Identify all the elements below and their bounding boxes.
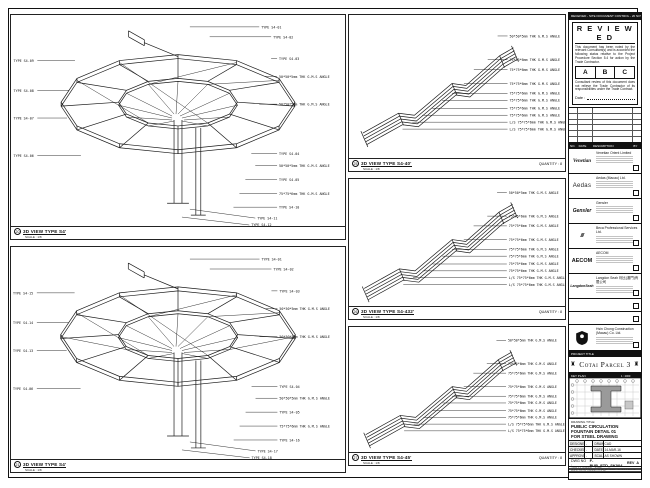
status-checkbox — [633, 165, 639, 171]
address-lines — [596, 206, 633, 213]
aedas-logo: Aedas — [573, 183, 592, 189]
detail-bubble: 20 — [14, 228, 21, 235]
callout-label: 50*50*5mm THK G.M.S ANGLE — [509, 191, 559, 195]
detail-bubble: 21 — [14, 461, 21, 468]
callout-label: 75*75*6mm THK G.M.S ANGLE — [279, 425, 330, 429]
callout-label: 50*50*5mm THK G.M.S ANGLE — [279, 75, 330, 79]
callout-label: 75*75*6mm THK G.M.S ANGLE — [510, 58, 561, 62]
consultant-name: Gensler — [596, 201, 608, 205]
viewport-angles-bottom: 50*50*5mm THK G.M.S ANGLE 75*75*6mm THK … — [348, 326, 566, 466]
leader-lines — [404, 340, 506, 430]
revision-table — [569, 108, 641, 143]
adjacent-block — [625, 401, 633, 409]
grade-a: A — [576, 67, 596, 78]
status-checkbox — [633, 290, 639, 296]
viewport-scale: SCALE : 1/8 — [25, 235, 342, 239]
title-block-panel: RECEIVED - SITE DOCUMENT CONTROL - 20 NO… — [568, 12, 642, 480]
callout-label: TYPE S4-08 — [14, 89, 34, 93]
drawing-title-line-3: FOR STEEL DRAWING — [571, 434, 639, 439]
callout-label: TYPE S4-06 — [14, 154, 34, 158]
callout-label: 75*75*6mm THK G.M.S ANGLE — [510, 99, 561, 103]
consultant-name: AECOM — [596, 251, 608, 255]
callout-label: 50*50*5mm THK G.M.S ANGLE — [510, 34, 561, 38]
status-grades: A B C — [575, 66, 635, 79]
callout-label: 75*75*6mm THK G.M.S ANGLE — [510, 82, 561, 86]
callout-label: TYPE S4-01 — [261, 25, 281, 29]
contractor-name: Hsin Chong Construction (Macau) Co. Ltd. — [596, 327, 634, 335]
consultant-name: Beca Professional Services Ltd. — [596, 226, 637, 234]
project-name: Cotai Parcel 3 — [579, 360, 631, 369]
callout-label: TYPE S4-15 — [13, 291, 33, 295]
callout-label: 75*75*6mm THK G.M.S ANGLE — [509, 269, 559, 273]
wireframe-angles-drawing: 50*50*5mm THK G.M.S ANGLE 75*75*6mm THK … — [349, 179, 565, 306]
address-lines — [596, 236, 633, 243]
callout-label: 50*50*5mm THK G.M.S ANGLE — [279, 103, 330, 107]
address-lines — [596, 286, 633, 293]
status-checkbox — [633, 303, 639, 309]
callout-label: TYPE S4-03 — [279, 57, 299, 61]
address-lines — [596, 256, 633, 263]
callout-label: TYPE S4-17 — [258, 449, 278, 453]
callout-label: 75*75*6mm THK G.M.S ANGLE — [510, 68, 561, 72]
viewport-label-block: 21 3D VIEW TYPE S4' SCALE : 1/8 — [11, 459, 345, 472]
callout-label: 50*50*5mm THK G.M.S ANGLE — [279, 164, 330, 168]
quantity-note: QUANTITY : 8 — [539, 162, 562, 166]
callout-label: 75*75*6mm THK G.M.S ANGLE — [509, 262, 559, 266]
wireframe-canopy-drawing: TYPE S4-01 TYPE S4-02 TYPE S4-15 TYPE S4… — [11, 247, 345, 459]
callout-label: 50*50*5mm THK G.M.S ANGLE — [279, 335, 330, 339]
callout-label: TYPE S4-11 — [257, 217, 277, 221]
callout-label: TYPE S4-05 — [279, 411, 299, 415]
callout-labels: 50*50*5mm THK G.M.S ANGLE 75*75*6mm THK … — [508, 339, 565, 433]
callout-label: 75*75*6mm THK G.M.S ANGLE — [510, 114, 561, 118]
angle-bundle — [362, 202, 517, 302]
canopy-structure — [61, 31, 295, 215]
viewport-label-block: 26 3D VIEW TYPE S4-432' QUANTITY : 8 SCA… — [349, 306, 565, 319]
langdon-seah-logo: LangdonSeah — [570, 284, 593, 288]
callout-label: 75*75*6mm THK G.M.S ANGLE — [508, 416, 557, 420]
detail-bubble: 26 — [352, 308, 359, 315]
callout-label: TYPE S4-04 — [279, 152, 299, 156]
callout-label: L/S 75*75*6mm THK G.M.S ANGLE — [510, 127, 565, 131]
viewport-canopy-top: TYPE S4-01 TYPE S4-02 TYPE S4-09 TYPE S4… — [10, 14, 346, 240]
viewport-angles-top: 50*50*5mm THK G.M.S ANGLE 75*75*6mm THK … — [348, 14, 566, 172]
viewport-label-block: 27 3D VIEW TYPE S4-45' QUANTITY : 8 SCAL… — [349, 452, 565, 465]
callout-label: 75*75*6mm THK G.M.S ANGLE — [509, 214, 559, 218]
viewport-title: 3D VIEW TYPE S4' — [23, 462, 66, 468]
viewport-title: 3D VIEW TYPE S4-40' — [361, 161, 412, 167]
key-plan: KEY PLAN 1 : 2000 — [569, 373, 641, 419]
callout-label: 50*50*5mm THK G.M.S ANGLE — [508, 339, 557, 343]
drawing-sheet: TYPE S4-01 TYPE S4-02 TYPE S4-09 TYPE S4… — [0, 0, 650, 488]
status-checkbox — [633, 342, 639, 348]
viewport-scale: SCALE : 1/8 — [363, 167, 562, 171]
callout-label: L/S 75*75*6mm THK G.M.S ANGLE — [510, 120, 565, 124]
viewport-scale: SCALE : 1/8 — [363, 315, 562, 319]
callout-label: 50*50*5mm THK G.M.S ANGLE — [279, 307, 330, 311]
banner-ornament-left-icon: ♜ — [570, 362, 576, 368]
dwg-number-row: DWG NO : F-PUB_FTD_SK004 REV A — [569, 459, 641, 467]
detail-bubble: 27 — [352, 454, 359, 461]
leader-lines — [403, 36, 508, 129]
viewport-canopy-bottom: TYPE S4-01 TYPE S4-02 TYPE S4-15 TYPE S4… — [10, 246, 346, 473]
key-plan-scale: 1 : 2000 — [621, 374, 631, 378]
beca-logo: /// — [580, 233, 583, 239]
callout-label: TYPE S4-10 — [279, 206, 299, 210]
callout-label: 75*75*6mm THK G.M.S ANGLE — [508, 362, 557, 366]
wireframe-canopy-drawing: TYPE S4-01 TYPE S4-02 TYPE S4-09 TYPE S4… — [11, 15, 345, 226]
callout-label: TYPE S4-05 — [279, 178, 299, 182]
callout-label: 75*75*6mm THK G.M.S ANGLE — [279, 192, 330, 196]
address-lines — [596, 156, 633, 163]
revision-row — [569, 136, 641, 142]
consultant-row-aedas: Aedas Aedas (Macau) Ltd. — [569, 174, 641, 199]
viewport-scale: SCALE : 1/8 — [25, 468, 342, 472]
aecom-logo: AECOM — [572, 258, 592, 264]
leader-lines — [403, 193, 507, 285]
viewport-title: 3D VIEW TYPE S4-432' — [361, 309, 414, 315]
consultant-row-empty — [569, 312, 641, 325]
dwg-no-label: DWG NO : — [571, 459, 588, 467]
status-checkbox — [633, 240, 639, 246]
callout-label: 75*75*6mm THK G.M.S ANGLE — [508, 385, 557, 389]
viewport-angles-middle: 50*50*5mm THK G.M.S ANGLE 75*75*6mm THK … — [348, 178, 566, 320]
callout-label: 75*75*6mm THK G.M.S ANGLE — [509, 248, 559, 252]
callout-label: TYPE S4-02 — [273, 35, 293, 39]
address-lines — [596, 181, 633, 188]
address-lines — [596, 337, 633, 344]
viewport-scale: SCALE : 1/8 — [363, 461, 562, 465]
date-fill-line — [587, 94, 635, 100]
consultant-name: Aedas (Macau) Ltd. — [596, 176, 626, 180]
drawing-title-block: DRAWING TITLE: PUBLIC CIRCULATION FOUNTA… — [569, 419, 641, 472]
rev-label: REV — [627, 461, 634, 465]
signoff-fields: DESIGNED - DRAWN CAD CHECKED - DATE 14-M… — [569, 440, 641, 459]
callout-label: L/S 75*75*6mm THK G.M.S ANGLE — [509, 276, 565, 280]
callout-label: 75*75*6mm THK G.M.S ANGLE — [508, 409, 557, 413]
callout-label: 75*75*6mm THK G.M.S ANGLE — [509, 238, 559, 242]
quantity-note: QUANTITY : 8 — [539, 456, 562, 460]
panel-bottom-strip — [569, 472, 641, 479]
callout-labels: 50*50*5mm THK G.M.S ANGLE 75*75*6mm THK … — [510, 34, 565, 131]
consultant-row-langdon-seah: LangdonSeah Langdon Seah 利比(澳門)有限公司 — [569, 274, 641, 299]
consultant-row-empty — [569, 299, 641, 312]
callout-label: TYPE S4-07 — [14, 117, 34, 121]
rev-value: A — [636, 461, 639, 465]
grade-b: B — [596, 67, 616, 78]
key-plan-drawing: KEY PLAN 1 : 2000 — [569, 373, 641, 418]
key-plan-label: KEY PLAN — [571, 374, 586, 378]
document-control-strip: RECEIVED - SITE DOCUMENT CONTROL - 20 NO… — [569, 13, 641, 20]
viewport-title: 3D VIEW TYPE S4' — [23, 229, 66, 235]
project-name-banner: ♜ Cotai Parcel 3 ♜ — [569, 357, 641, 373]
viewport-title: 3D VIEW TYPE S4-45' — [361, 455, 412, 461]
contractor-row-hsin-chong: Hsin Chong Construction (Macau) Co. Ltd. — [569, 325, 641, 351]
callout-label: L/S 75*75*6mm THK G.M.S ANGLE — [508, 422, 565, 426]
callout-label: 75*75*6mm THK G.M.S ANGLE — [509, 254, 559, 258]
consultant-list: Venetian Venetian Orient Limited Aedas A… — [569, 149, 641, 351]
angle-bundle — [361, 46, 519, 147]
callout-label: TYPE S4-06 — [13, 387, 33, 391]
callout-label: TYPE S4-02 — [273, 267, 293, 271]
grade-c: C — [615, 67, 634, 78]
callout-label: TYPE S4-13 — [13, 349, 33, 353]
status-checkbox — [633, 190, 639, 196]
callout-labels: 50*50*5mm THK G.M.S ANGLE 75*75*6mm THK … — [509, 191, 565, 287]
callout-label: 75*75*6mm THK G.M.S ANGLE — [510, 107, 561, 111]
reviewed-stamp: R E V I E W E D This document has been n… — [569, 20, 641, 108]
status-checkbox — [633, 316, 639, 322]
callout-label: 50*50*5mm THK G.M.S ANGLE — [279, 397, 330, 401]
wireframe-angles-drawing: 50*50*5mm THK G.M.S ANGLE 75*75*6mm THK … — [349, 327, 565, 452]
callout-label: TYPE S4-16 — [279, 438, 299, 442]
status-checkbox — [633, 215, 639, 221]
consultant-row-aecom: AECOM AECOM — [569, 249, 641, 274]
callout-label: 75*75*6mm THK G.M.S ANGLE — [508, 394, 557, 398]
callout-label: 75*75*6mm THK G.M.S ANGLE — [508, 371, 557, 375]
dwg-no-value: F-PUB_FTD_SK004 — [590, 458, 625, 468]
viewport-label-block: 20 3D VIEW TYPE S4' SCALE : 1/8 — [11, 226, 345, 239]
banner-ornament-right-icon: ♜ — [634, 362, 640, 368]
reviewed-paragraph-1: This document has been noted by the rele… — [575, 46, 635, 65]
date-label: Date : — [575, 96, 585, 100]
callout-label: L/S 75*75*6mm THK G.M.S ANGLE — [508, 429, 565, 433]
callout-label: TYPE S4-01 — [262, 258, 282, 262]
consultant-row-gensler: Gensler Gensler — [569, 199, 641, 224]
callout-label: TYPE S4-03 — [279, 289, 299, 293]
detail-bubble: 25 — [352, 160, 359, 167]
quantity-note: QUANTITY : 8 — [539, 310, 562, 314]
callout-label: TYPE S4-14 — [13, 321, 33, 325]
consultant-name: Venetian Orient Limited — [596, 151, 631, 155]
canopy-structure — [61, 263, 296, 448]
callout-label: 75*75*6mm THK G.M.S ANGLE — [510, 92, 561, 96]
consultant-row-beca: /// Beca Professional Services Ltd. — [569, 224, 641, 249]
callout-label: 75*75*6mm THK G.M.S ANGLE — [508, 401, 557, 405]
reviewed-paragraph-2: Consultant review of this document does … — [575, 81, 635, 93]
wireframe-angles-drawing: 50*50*5mm THK G.M.S ANGLE 75*75*6mm THK … — [349, 15, 565, 158]
consultant-name: Langdon Seah 利比(澳門)有限公司 — [596, 276, 638, 284]
reviewed-title: R E V I E W E D — [575, 24, 635, 44]
gensler-logo: Gensler — [573, 208, 592, 214]
callout-label: 75*75*6mm THK G.M.S ANGLE — [509, 224, 559, 228]
callout-label: TYPE S4-04 — [279, 385, 299, 389]
status-checkbox — [633, 265, 639, 271]
viewport-label-block: 25 3D VIEW TYPE S4-40' QUANTITY : 8 SCAL… — [349, 158, 565, 171]
callout-label: L/S 75*75*6mm THK G.M.S ANGLE — [509, 283, 565, 287]
consultant-row-venetian: Venetian Venetian Orient Limited — [569, 149, 641, 174]
hsin-chong-shield-logo — [576, 331, 588, 345]
callout-label: TYPE S4-09 — [14, 59, 34, 63]
venetian-logo: Venetian — [573, 159, 591, 164]
date-row: Date : — [575, 94, 635, 100]
angle-bundle — [364, 350, 517, 448]
reviewed-stamp-inner: R E V I E W E D This document has been n… — [572, 22, 638, 105]
